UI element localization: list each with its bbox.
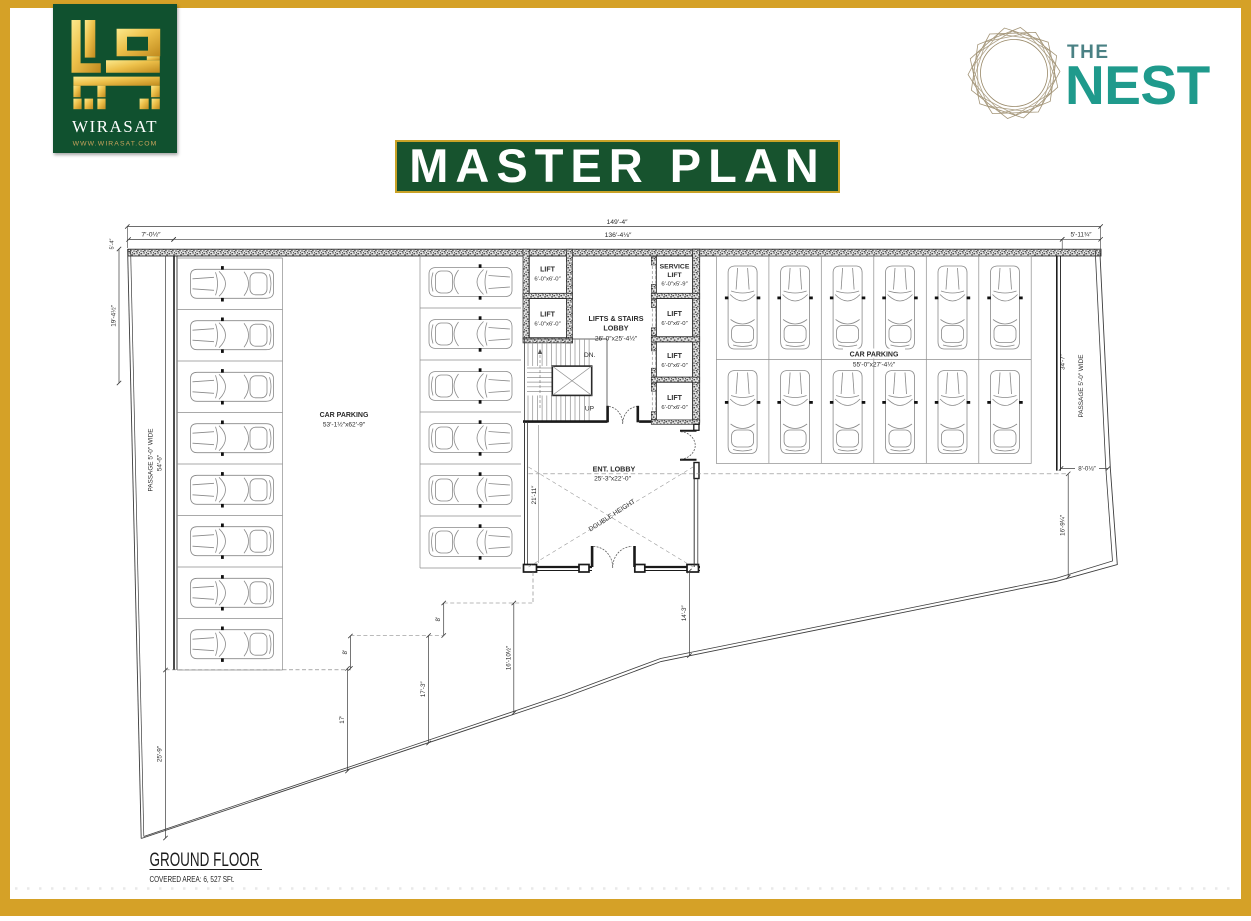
svg-text:LIFT: LIFT: [667, 395, 682, 402]
svg-text:19′-4½″: 19′-4½″: [110, 304, 118, 326]
svg-text:ENT. LOBBY: ENT. LOBBY: [593, 465, 636, 474]
svg-text:6′-0″x6′-0″: 6′-0″x6′-0″: [534, 277, 560, 283]
svg-text:COVERED AREA: 6, 527 SFt.: COVERED AREA: 6, 527 SFt.: [150, 874, 235, 884]
svg-text:5′-11¾″: 5′-11¾″: [1070, 232, 1092, 239]
svg-text:PASSAGE 5′-0″ WIDE: PASSAGE 5′-0″ WIDE: [148, 428, 155, 491]
svg-text:6′-0″x5′-9″: 6′-0″x5′-9″: [661, 282, 687, 288]
svg-text:34′-7″: 34′-7″: [1060, 353, 1067, 370]
svg-text:LIFT: LIFT: [540, 312, 555, 319]
svg-text:CAR PARKING: CAR PARKING: [850, 352, 899, 359]
svg-text:25′-3″x22′-0″: 25′-3″x22′-0″: [594, 476, 631, 483]
svg-text:16′-9¼″: 16′-9¼″: [1060, 514, 1067, 536]
svg-text:55′-0″x27′-4½″: 55′-0″x27′-4½″: [853, 361, 896, 369]
svg-text:LIFT: LIFT: [667, 272, 682, 279]
svg-text:17′-3″: 17′-3″: [420, 681, 427, 698]
svg-text:8′-0⅛″: 8′-0⅛″: [1078, 466, 1096, 473]
svg-text:6′-0″x6′-0″: 6′-0″x6′-0″: [661, 405, 687, 411]
svg-text:DOUBLE HEIGHT: DOUBLE HEIGHT: [588, 498, 637, 533]
svg-text:53′-1½″x62′-9″: 53′-1½″x62′-9″: [323, 421, 366, 429]
svg-text:CAR PARKING: CAR PARKING: [320, 412, 369, 419]
svg-text:6′-0″x6′-0″: 6′-0″x6′-0″: [661, 363, 687, 369]
svg-text:136′-4⅛″: 136′-4⅛″: [605, 232, 632, 239]
svg-text:LIFT: LIFT: [667, 353, 682, 360]
svg-text:149′-4″: 149′-4″: [606, 219, 628, 226]
svg-text:GROUND FLOOR: GROUND FLOOR: [150, 849, 260, 871]
svg-text:UP: UP: [585, 406, 595, 413]
svg-text:6′-0″x6′-0″: 6′-0″x6′-0″: [534, 322, 560, 328]
svg-text:16′-10½″: 16′-10½″: [505, 645, 512, 670]
svg-text:17′: 17′: [339, 715, 346, 724]
svg-text:LIFT: LIFT: [667, 311, 682, 318]
svg-text:25′-9″: 25′-9″: [157, 745, 164, 762]
svg-text:LIFT: LIFT: [540, 267, 555, 274]
svg-text:26′-0″x25′-4½″: 26′-0″x25′-4½″: [595, 335, 638, 343]
svg-text:21′-11″: 21′-11″: [531, 485, 538, 505]
svg-text:8′: 8′: [435, 616, 442, 621]
svg-text:7′-0½″: 7′-0½″: [141, 231, 161, 239]
svg-text:5′-4″: 5′-4″: [110, 238, 116, 249]
svg-text:LOBBY: LOBBY: [603, 324, 628, 333]
svg-text:PASSAGE 5′-0″ WIDE: PASSAGE 5′-0″ WIDE: [1078, 354, 1085, 417]
svg-text:14′-3″: 14′-3″: [681, 605, 688, 622]
svg-text:DN.: DN.: [584, 352, 596, 359]
svg-text:6′-0″x6′-0″: 6′-0″x6′-0″: [661, 321, 687, 327]
svg-text:54′-6″: 54′-6″: [157, 454, 164, 471]
svg-text:8′: 8′: [342, 649, 349, 654]
svg-text:SERVICE: SERVICE: [660, 264, 690, 271]
svg-text:LIFTS & STAIRS: LIFTS & STAIRS: [589, 314, 644, 323]
